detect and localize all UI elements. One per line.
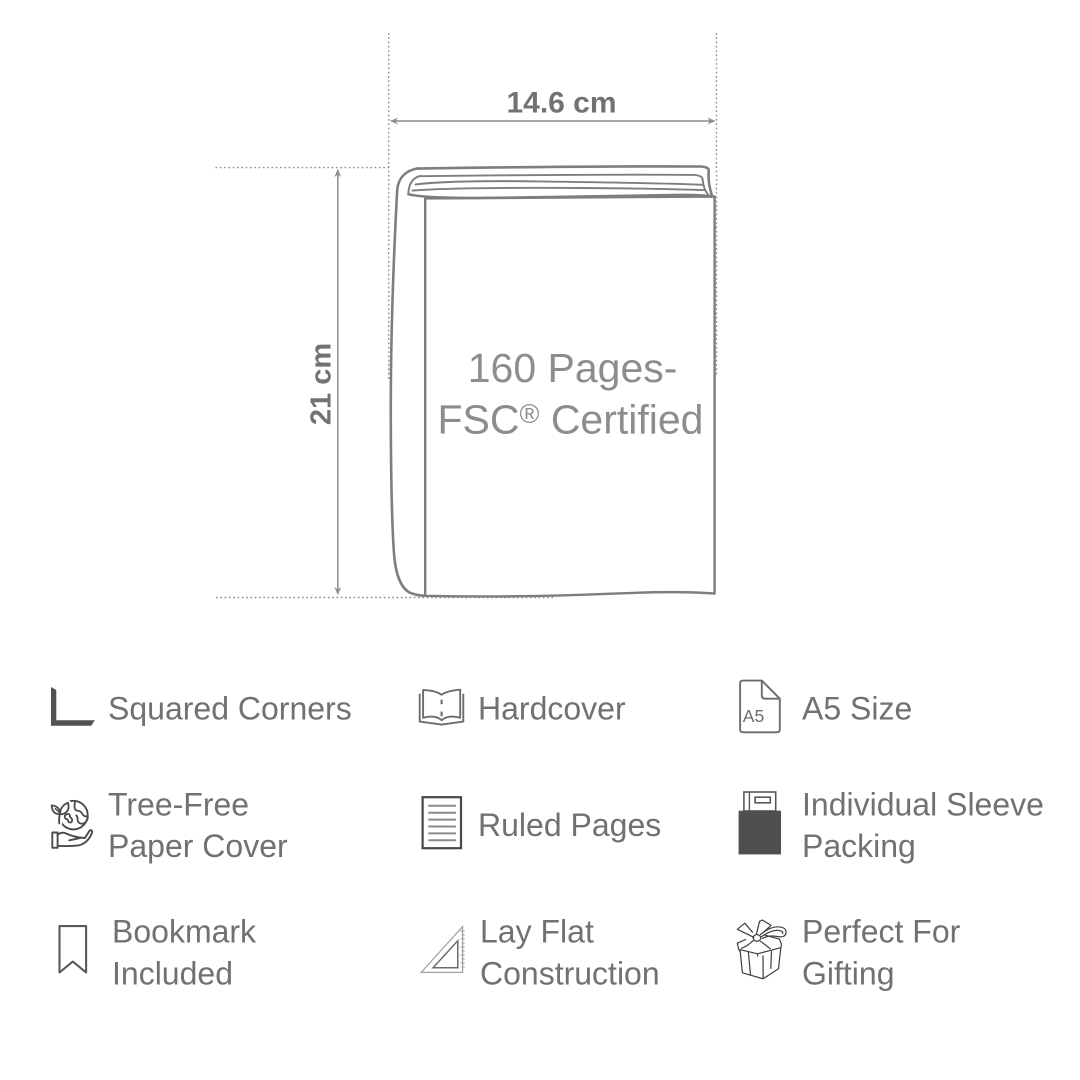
svg-text:Bookmark: Bookmark xyxy=(112,914,257,950)
svg-text:A5: A5 xyxy=(743,706,764,726)
svg-text:160 Pages-: 160 Pages- xyxy=(468,345,678,391)
svg-text:Ruled Pages: Ruled Pages xyxy=(478,807,661,843)
svg-text:21 cm: 21 cm xyxy=(306,343,338,425)
svg-text:Gifting: Gifting xyxy=(802,956,894,992)
svg-text:Construction: Construction xyxy=(480,956,660,992)
svg-text:A5 Size: A5 Size xyxy=(802,691,912,727)
svg-text:Lay Flat: Lay Flat xyxy=(480,914,594,950)
svg-text:Individual Sleeve: Individual Sleeve xyxy=(802,787,1044,823)
svg-text:FSC® Certified: FSC® Certified xyxy=(438,397,704,443)
svg-text:Perfect For: Perfect For xyxy=(802,914,961,950)
svg-text:Packing: Packing xyxy=(802,828,916,864)
svg-text:14.6 cm: 14.6 cm xyxy=(506,87,616,120)
svg-text:Included: Included xyxy=(112,956,233,992)
svg-text:Paper Cover: Paper Cover xyxy=(108,828,288,864)
svg-text:Squared Corners: Squared Corners xyxy=(108,691,352,727)
svg-text:Tree-Free: Tree-Free xyxy=(108,787,249,823)
svg-text:Hardcover: Hardcover xyxy=(478,691,626,727)
